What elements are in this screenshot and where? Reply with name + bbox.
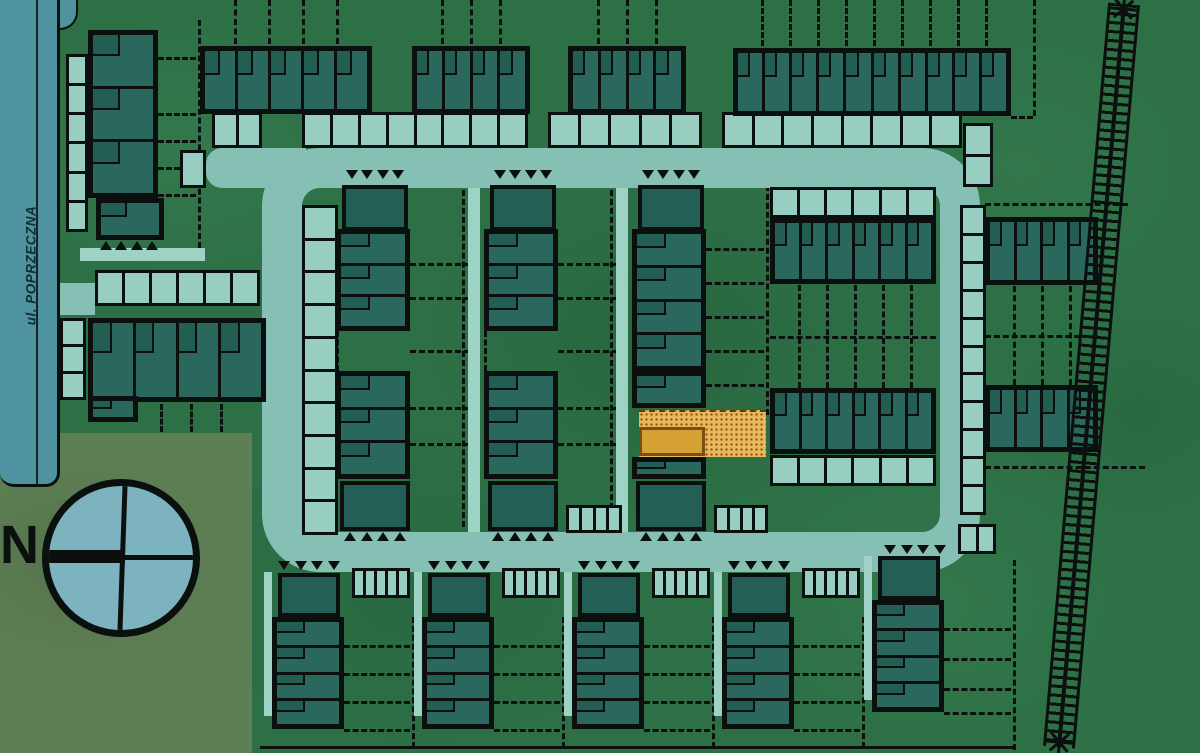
entry-marker-row bbox=[346, 170, 404, 179]
entry-marker-icon bbox=[428, 561, 440, 570]
compass-needle-north bbox=[47, 550, 125, 563]
site-plan-canvas: N ul. POPRZECZNA bbox=[0, 0, 1200, 753]
entry-marker-icon bbox=[934, 545, 946, 554]
entry-marker-icon bbox=[394, 532, 406, 541]
entry-marker-icon bbox=[595, 561, 607, 570]
entry-marker-icon bbox=[392, 170, 404, 179]
entry-marker-icon bbox=[673, 532, 685, 541]
entry-marker-icon bbox=[461, 561, 473, 570]
tree-icon bbox=[1107, 0, 1140, 25]
entry-marker-icon bbox=[673, 170, 685, 179]
entry-marker-icon bbox=[492, 532, 504, 541]
compass-needle-east bbox=[121, 555, 195, 560]
entry-marker-icon bbox=[917, 545, 929, 554]
entry-marker-icon bbox=[640, 532, 652, 541]
entry-marker-icon bbox=[344, 532, 356, 541]
entry-marker-icon bbox=[311, 561, 323, 570]
entry-marker-icon bbox=[115, 241, 127, 250]
entry-marker-icon bbox=[346, 170, 358, 179]
entry-marker-icon bbox=[578, 561, 590, 570]
entry-marker-icon bbox=[542, 532, 554, 541]
entry-marker-row bbox=[728, 561, 790, 570]
entry-marker-icon bbox=[628, 561, 640, 570]
entry-marker-row bbox=[100, 241, 158, 250]
entry-marker-row bbox=[494, 170, 552, 179]
entry-marker-row bbox=[884, 545, 946, 554]
entry-marker-icon bbox=[525, 532, 537, 541]
entry-marker-row bbox=[344, 532, 406, 541]
entry-marker-row bbox=[278, 561, 340, 570]
entry-marker-icon bbox=[494, 170, 506, 179]
entry-markers-layer bbox=[0, 0, 1200, 753]
entry-marker-icon bbox=[445, 561, 457, 570]
site-boundary-line bbox=[260, 746, 1016, 749]
entry-marker-icon bbox=[377, 170, 389, 179]
tree-icon bbox=[1043, 726, 1076, 753]
entry-marker-icon bbox=[295, 561, 307, 570]
entry-marker-icon bbox=[690, 532, 702, 541]
entry-marker-icon bbox=[478, 561, 490, 570]
entry-marker-icon bbox=[328, 561, 340, 570]
compass-rose bbox=[42, 479, 200, 637]
entry-marker-icon bbox=[657, 532, 669, 541]
entry-marker-row bbox=[578, 561, 640, 570]
entry-marker-icon bbox=[509, 532, 521, 541]
entry-marker-icon bbox=[745, 561, 757, 570]
entry-marker-row bbox=[642, 170, 700, 179]
entry-marker-row bbox=[492, 532, 554, 541]
entry-marker-icon bbox=[509, 170, 521, 179]
compass-north-label: N bbox=[0, 518, 39, 572]
entry-marker-row bbox=[640, 532, 702, 541]
entry-marker-icon bbox=[377, 532, 389, 541]
entry-marker-icon bbox=[901, 545, 913, 554]
entry-marker-icon bbox=[778, 561, 790, 570]
entry-marker-icon bbox=[611, 561, 623, 570]
entry-marker-icon bbox=[884, 545, 896, 554]
entry-marker-icon bbox=[100, 241, 112, 250]
entry-marker-icon bbox=[361, 532, 373, 541]
entry-marker-icon bbox=[361, 170, 373, 179]
entry-marker-icon bbox=[728, 561, 740, 570]
entry-marker-icon bbox=[540, 170, 552, 179]
entry-marker-icon bbox=[688, 170, 700, 179]
entry-marker-row bbox=[428, 561, 490, 570]
street-name-label: ul. POPRZECZNA bbox=[24, 201, 39, 331]
entry-marker-icon bbox=[146, 241, 158, 250]
entry-marker-icon bbox=[642, 170, 654, 179]
entry-marker-icon bbox=[278, 561, 290, 570]
entry-marker-icon bbox=[657, 170, 669, 179]
entry-marker-icon bbox=[131, 241, 143, 250]
entry-marker-icon bbox=[761, 561, 773, 570]
entry-marker-icon bbox=[525, 170, 537, 179]
